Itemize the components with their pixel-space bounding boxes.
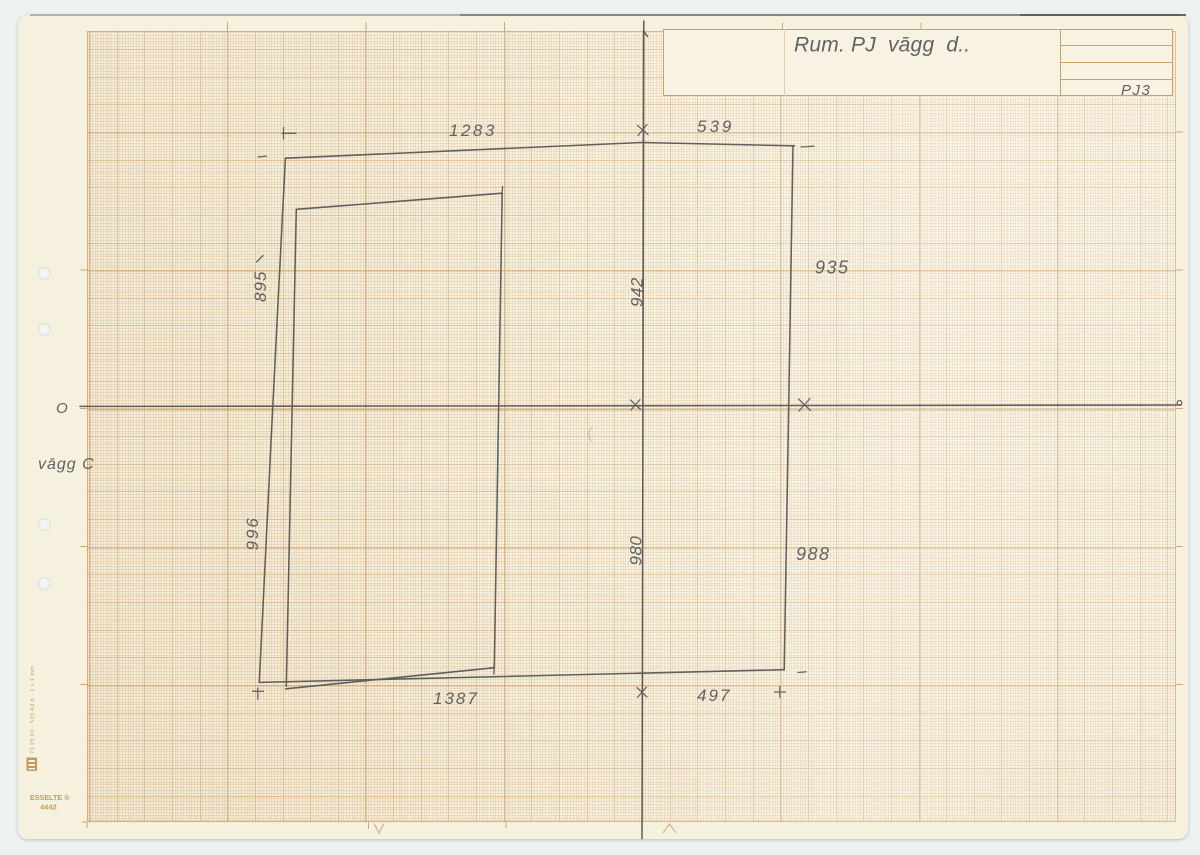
svg-text:935: 935 — [815, 258, 850, 278]
svg-text:vāgg C: vāgg C — [38, 456, 95, 473]
svg-text:73 25 01 - 515 A3 b - 1 x 1 mm: 73 25 01 - 515 A3 b - 1 x 1 mm — [30, 666, 36, 754]
svg-text:1283: 1283 — [449, 121, 497, 140]
svg-text:PJ3: PJ3 — [1121, 82, 1151, 99]
svg-text:988: 988 — [796, 544, 831, 564]
svg-text:980: 980 — [627, 536, 646, 566]
svg-text:497: 497 — [697, 686, 731, 705]
svg-text:895: 895 — [251, 271, 270, 302]
svg-text:1387: 1387 — [433, 689, 479, 708]
svg-text:4442: 4442 — [40, 803, 57, 812]
svg-text:539: 539 — [697, 117, 734, 136]
svg-text:O: O — [56, 400, 68, 417]
svg-text:Rum. PJ vāgg d..: Rum. PJ vāgg d.. — [794, 34, 970, 57]
svg-text:ESSELTE ®: ESSELTE ® — [30, 793, 70, 802]
svg-text:996: 996 — [243, 516, 262, 550]
svg-text:942: 942 — [628, 277, 647, 307]
